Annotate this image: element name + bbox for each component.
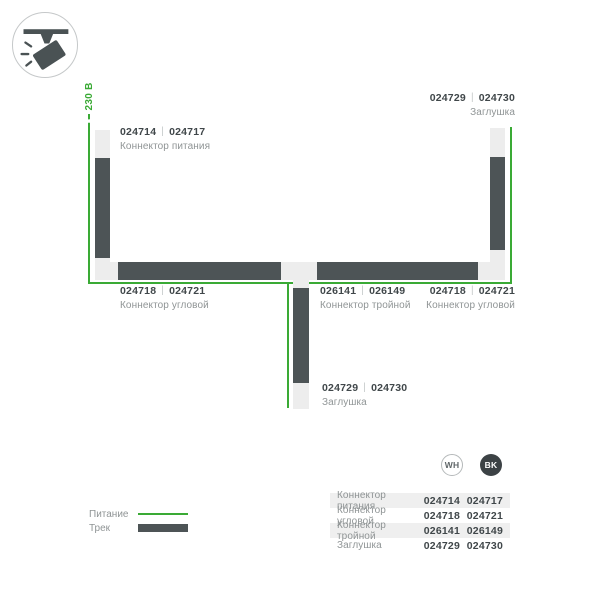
part-code-wh-cell: 024718 <box>417 510 460 522</box>
corner-connector-right-piece <box>490 250 505 280</box>
code-separator: | <box>471 285 474 296</box>
power-connector-piece <box>95 130 110 158</box>
code-separator: | <box>471 92 474 103</box>
part-code-wh-cell: 024714 <box>417 495 460 507</box>
part-code-bk-cell: 024730 <box>460 540 503 552</box>
code-separator: | <box>161 126 164 137</box>
color-badges: WH BK <box>441 454 502 476</box>
part-code-bk-cell: 026149 <box>460 525 503 537</box>
legend-track-label: Трек <box>89 523 138 534</box>
triple-connector-stem <box>293 262 309 288</box>
table-row: Коннектор тройной 026141 026149 <box>330 523 510 538</box>
part-code-bk-cell: 024717 <box>460 495 503 507</box>
part-codes: 024718|024721 <box>120 286 209 297</box>
table-row: Заглушка 024729 024730 <box>330 538 510 553</box>
power-line-dashed-segment <box>88 114 90 128</box>
track-left-vertical <box>95 158 110 258</box>
part-name-cell: Коннектор тройной <box>337 520 417 542</box>
track-right-vertical <box>490 157 505 250</box>
part-codes: 024729|024730 <box>322 383 407 394</box>
power-line-right <box>510 127 512 284</box>
label-triple-connector: 026141|026149 Коннектор тройной <box>320 286 411 311</box>
catalog-diagram-page: ~ 230 В 024714|024717 Коннектор питания … <box>0 0 600 600</box>
track-middle-vertical <box>293 288 309 383</box>
white-color-badge: WH <box>441 454 463 476</box>
label-endcap-bottom: 024729|024730 Заглушка <box>322 383 407 408</box>
part-name-cell: Заглушка <box>337 540 417 551</box>
part-name: Коннектор угловой <box>426 300 515 311</box>
part-name: Коннектор питания <box>120 141 210 152</box>
track-spotlight-icon <box>12 12 78 78</box>
power-line-left <box>88 128 90 284</box>
part-code-wh-cell: 026141 <box>417 525 460 537</box>
part-name: Коннектор угловой <box>120 300 209 311</box>
label-endcap-top: 024729|024730 Заглушка <box>430 93 515 118</box>
power-line-swatch <box>138 513 188 515</box>
part-codes: 024714|024717 <box>120 127 210 138</box>
track-spotlight-glyph <box>13 13 76 76</box>
black-color-badge: BK <box>480 454 502 476</box>
code-separator: | <box>361 285 364 296</box>
part-codes: 026141|026149 <box>320 286 411 297</box>
part-codes: 024729|024730 <box>430 93 515 104</box>
label-power-connector: 024714|024717 Коннектор питания <box>120 127 210 152</box>
track-swatch <box>138 524 188 532</box>
part-codes: 024718|024721 <box>426 286 515 297</box>
track-horizontal-left <box>118 262 281 280</box>
endcap-bottom-piece <box>293 383 309 409</box>
label-corner-connector-left: 024718|024721 Коннектор угловой <box>120 286 209 311</box>
parts-table: Коннектор питания 024714 024717 Коннекто… <box>330 493 510 553</box>
endcap-top-piece <box>490 128 505 157</box>
label-corner-connector-right: 024718|024721 Коннектор угловой <box>426 286 515 311</box>
voltage-label: ~ 230 В <box>84 77 96 125</box>
code-separator: | <box>363 382 366 393</box>
track-horizontal-right <box>317 262 478 280</box>
power-line-middle <box>287 284 289 408</box>
legend: Питание Трек <box>89 507 188 535</box>
legend-row-power: Питание <box>89 507 188 521</box>
code-separator: | <box>161 285 164 296</box>
part-name: Заглушка <box>430 107 515 118</box>
part-code-wh-cell: 024729 <box>417 540 460 552</box>
part-name: Заглушка <box>322 397 407 408</box>
legend-power-label: Питание <box>89 509 138 520</box>
legend-row-track: Трек <box>89 521 188 535</box>
corner-connector-left-piece <box>95 262 118 280</box>
part-name: Коннектор тройной <box>320 300 411 311</box>
part-code-bk-cell: 024721 <box>460 510 503 522</box>
